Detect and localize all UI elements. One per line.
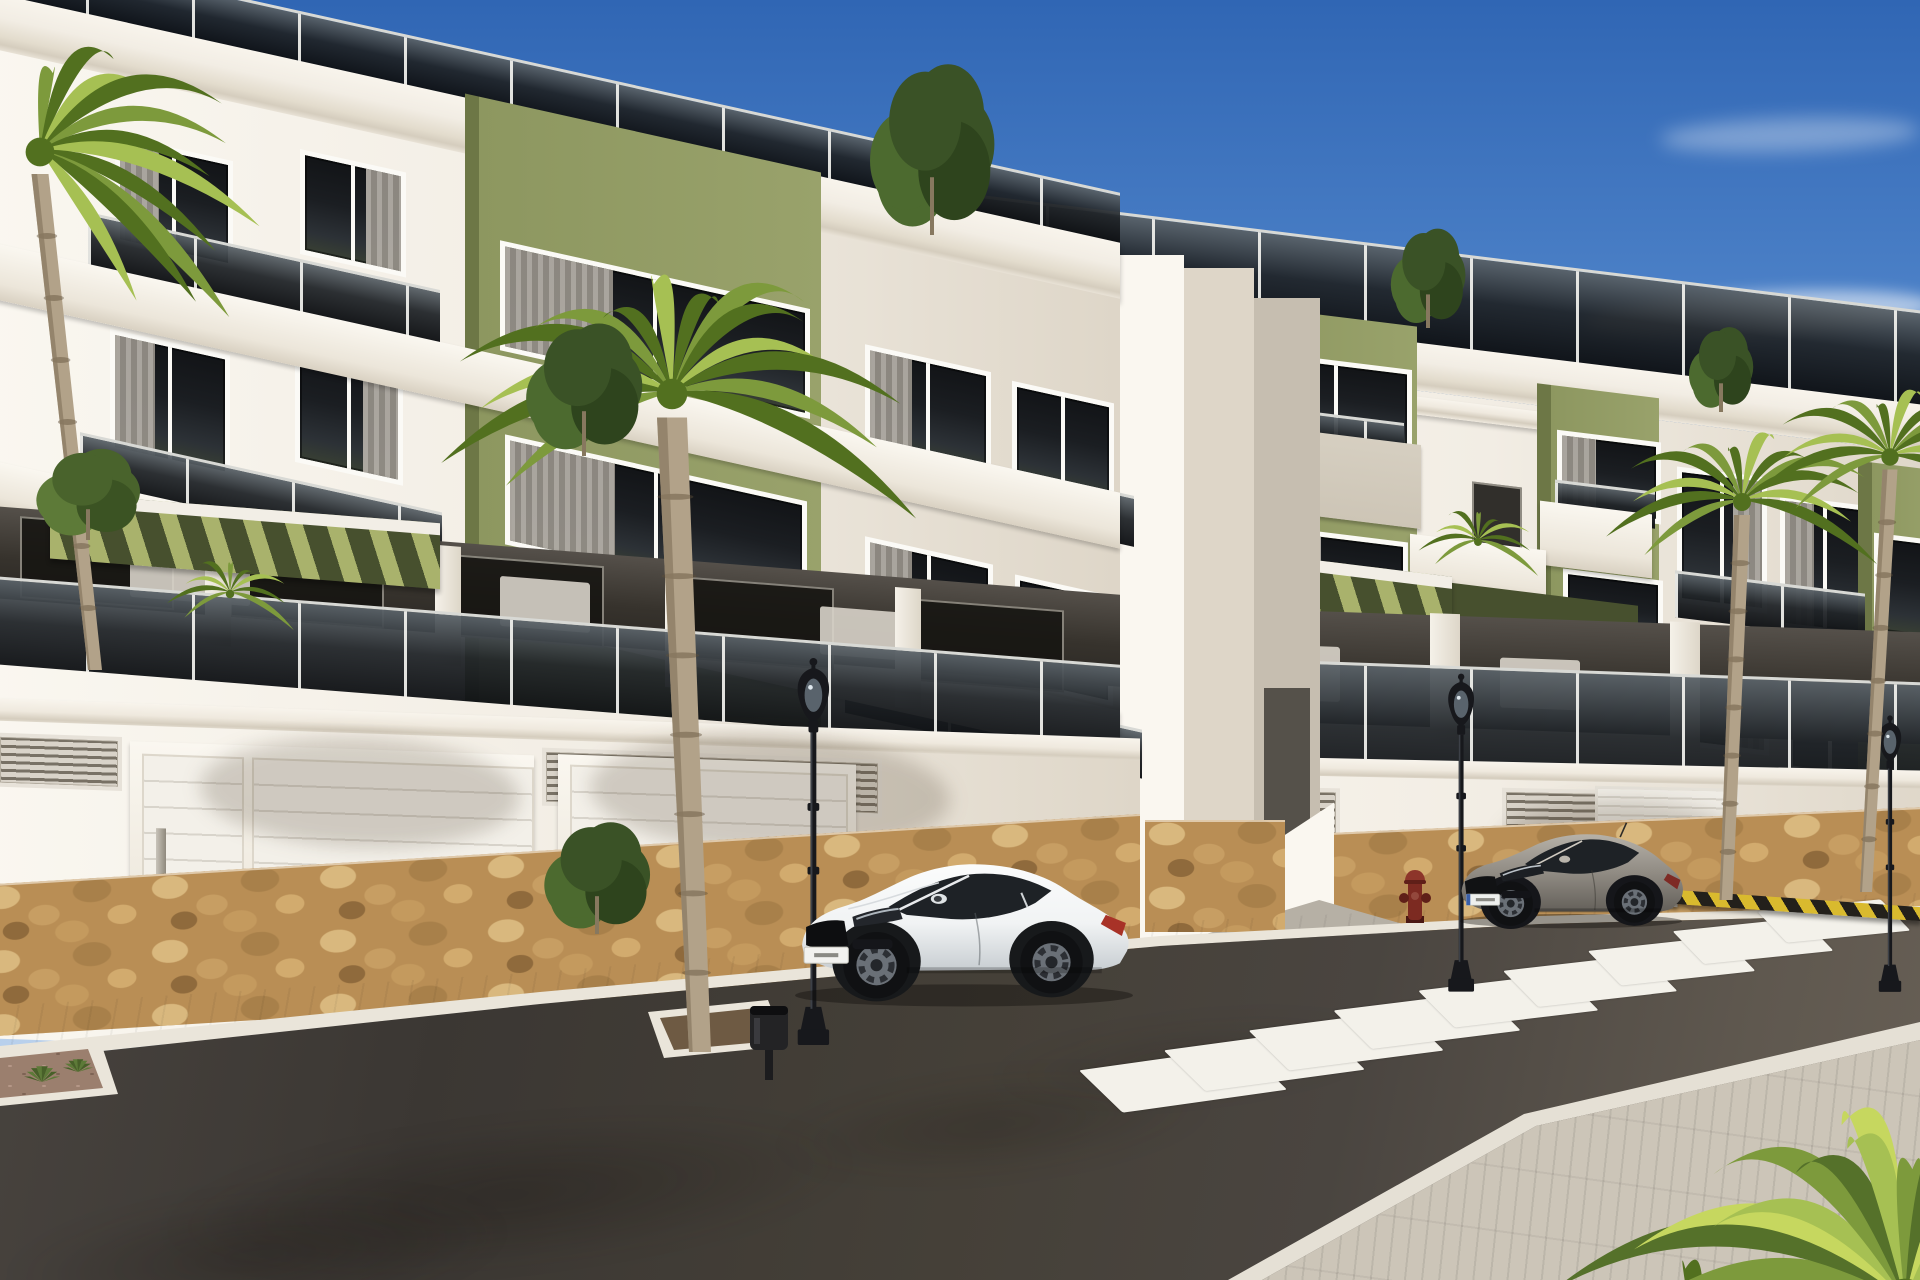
roof-tree-far-1 [1392, 232, 1464, 328]
planter-agave-2 [65, 1059, 91, 1078]
foreground-fronds-bright [1455, 850, 1920, 1280]
roof-tree-far-2 [1690, 330, 1752, 412]
street-shrub [546, 826, 648, 934]
balcony-tree-near [528, 328, 640, 456]
terrace-palmetto-left [100, 462, 360, 722]
fire-hydrant [1398, 868, 1432, 926]
scene-canvas [0, 0, 1920, 1280]
roof-tree-near [872, 70, 992, 235]
balcony-palmetto [1352, 414, 1604, 666]
objects-group [0, 0, 1920, 1280]
planter-agave-1 [26, 1066, 58, 1088]
